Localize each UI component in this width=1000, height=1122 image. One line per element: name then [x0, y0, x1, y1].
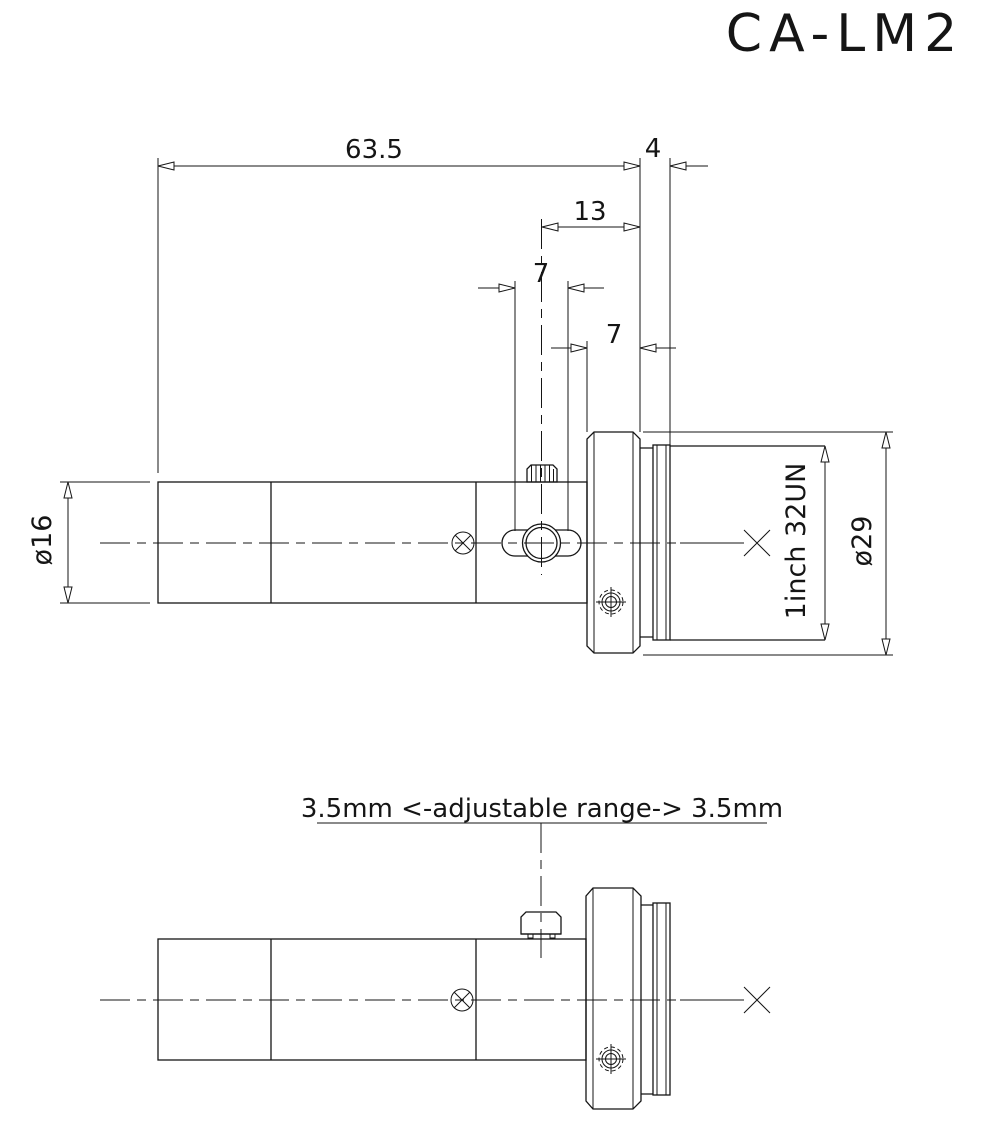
dim-flange-diameter-label: ø29: [847, 516, 878, 567]
dim-thread-spec-label: 1inch 32UN: [781, 463, 812, 620]
dim-flange-to-thread: 4: [640, 134, 708, 445]
flange-outline-bottom: [586, 888, 641, 1109]
flange-screw: [596, 587, 626, 617]
dim-thread-spec: 1inch 32UN: [781, 446, 829, 640]
dim-flange-to-thread-label: 4: [645, 134, 662, 164]
dim-overall-length-label: 63.5: [345, 135, 403, 165]
dim-knob-to-flange: 13: [542, 197, 640, 231]
relief-ring-bottom: [641, 903, 670, 1095]
axis-cross-icon: [744, 530, 770, 556]
adjustable-range-label: 3.5mm <-adjustable range-> 3.5mm: [301, 794, 783, 824]
dim-flange-thickness-label: 7: [606, 320, 623, 350]
dim-tube-diameter-label: ø16: [27, 515, 58, 566]
axis-cross-icon-bottom: [744, 987, 770, 1013]
dim-flange-thickness: 7: [551, 320, 676, 432]
dim-knob-to-flange-label: 13: [573, 197, 606, 227]
drawing-sheet: 63.5 4 13 7 7: [0, 0, 1000, 1122]
top-view: 63.5 4 13 7 7: [27, 134, 893, 655]
dim-tube-diameter: ø16: [27, 482, 150, 603]
flange-screw-bottom: [596, 1044, 626, 1074]
bottom-view: 3.5mm <-adjustable range-> 3.5mm: [100, 794, 783, 1109]
drawing-title: CA-LM2: [726, 4, 964, 64]
technical-drawing: 63.5 4 13 7 7: [0, 0, 1000, 1122]
dim-knob-travel-label: 7: [533, 259, 550, 289]
